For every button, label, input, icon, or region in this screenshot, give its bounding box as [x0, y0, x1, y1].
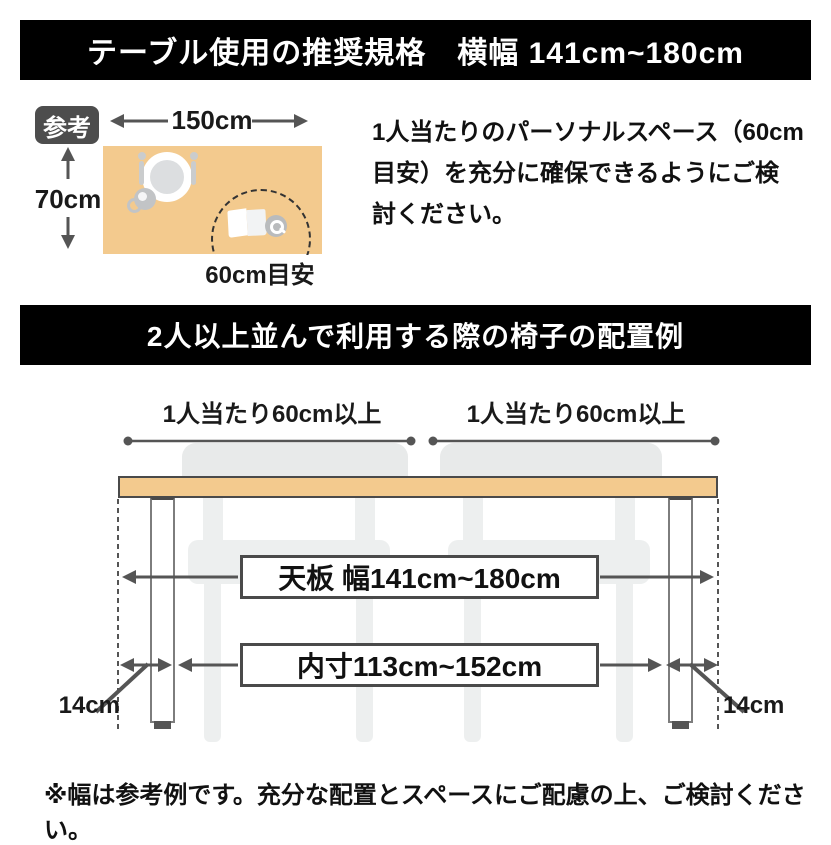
- section-banner: 2人以上並んで利用する際の椅子の配置例: [20, 305, 811, 365]
- header-banner: テーブル使用の推奨規格 横幅 141cm~180cm: [20, 20, 811, 80]
- table-depth-label: 70cm: [33, 184, 103, 215]
- tabletop-width-box: 天板 幅141cm~180cm: [240, 555, 599, 599]
- table-width-label: 150cm: [160, 105, 264, 136]
- footer-note: ※幅は参考例です。充分な配置とスペースにご配慮の上、ご検討ください。: [44, 775, 824, 845]
- per-person-label-right: 1人当たり60cm以上: [456, 394, 696, 429]
- infographic-page: { "header_banner": { "title": "テーブル使用の推奨…: [0, 0, 831, 831]
- per-person-label-left: 1人当たり60cm以上: [152, 394, 392, 429]
- per-person-line-right: [429, 437, 720, 446]
- leg-inset-label-left: 14cm: [40, 692, 120, 720]
- leg-inset-label-right: 14cm: [723, 692, 803, 720]
- inner-width-box: 内寸113cm~152cm: [240, 643, 599, 687]
- reference-badge: 参考: [35, 106, 99, 144]
- measurement-overlay: [0, 0, 831, 831]
- per-person-line-left: [124, 437, 416, 446]
